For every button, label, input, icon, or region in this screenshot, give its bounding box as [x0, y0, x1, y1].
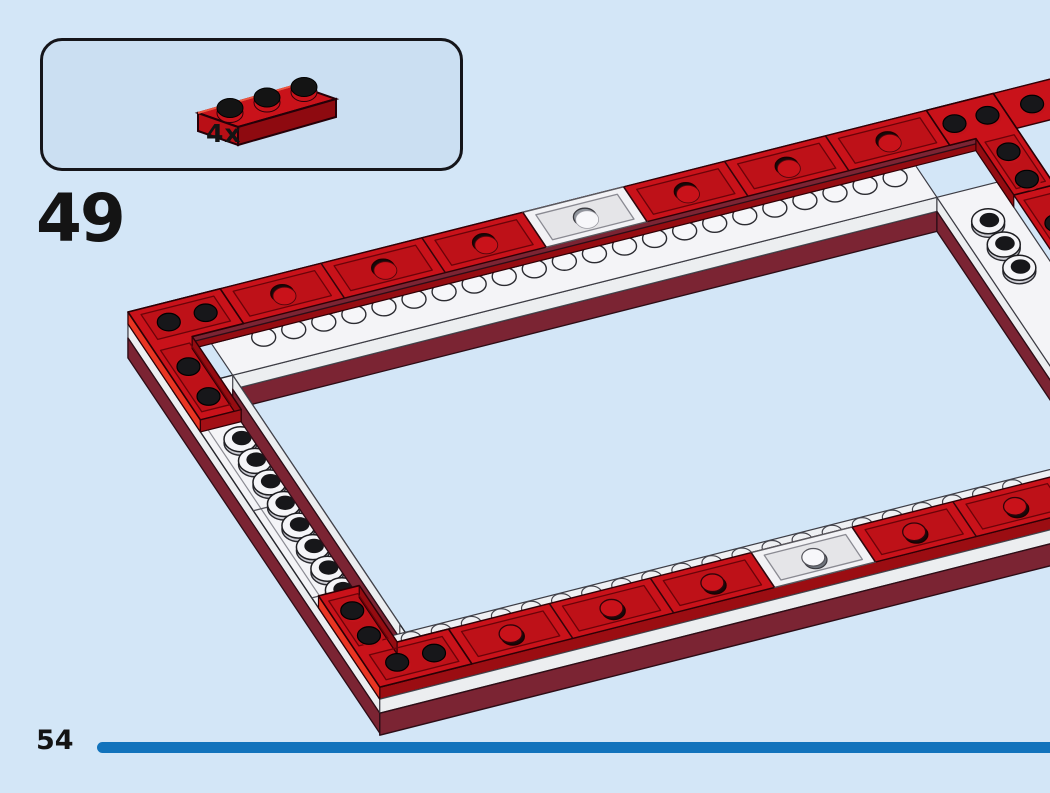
parts-callout-box: 4x [40, 38, 463, 171]
page-number: 54 [36, 725, 74, 756]
part-quantity-label: 4x [206, 119, 242, 148]
step-number: 49 [36, 180, 124, 257]
progress-bar [97, 742, 1050, 753]
instruction-page: 4x 49 54 [0, 0, 1050, 793]
red-plate-1x3-part-image [173, 49, 383, 161]
